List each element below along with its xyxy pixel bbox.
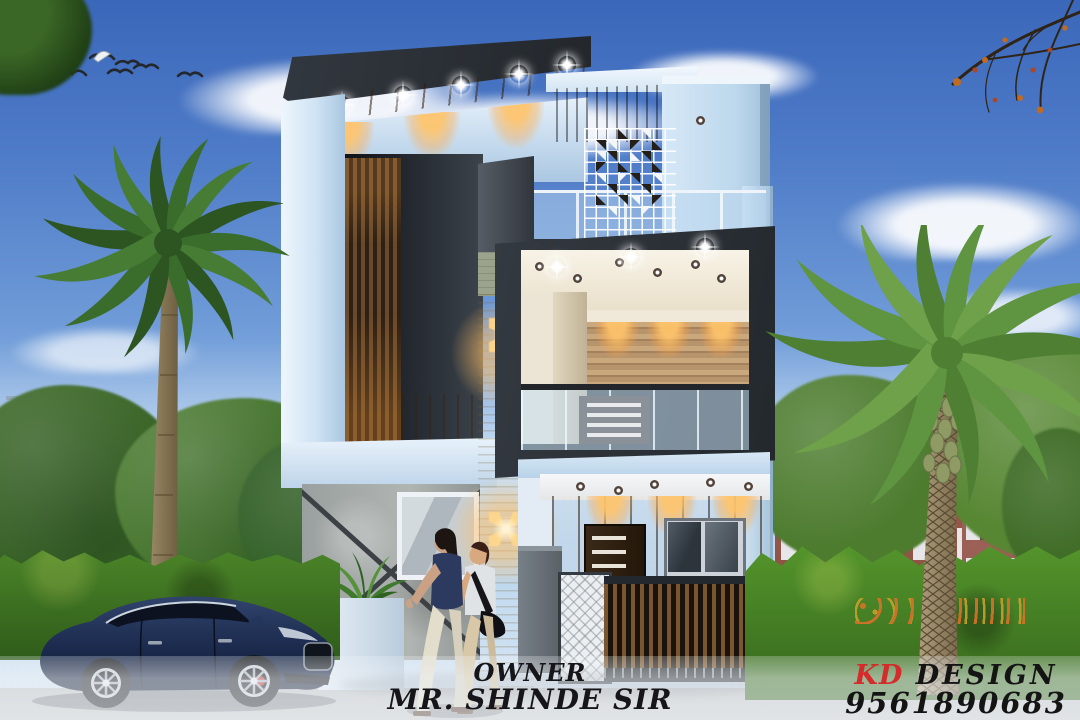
ceiling-downlight-icon	[622, 248, 640, 266]
downlight-glow	[595, 322, 639, 358]
door-slat	[592, 550, 626, 554]
stone-accent-wall	[587, 322, 749, 386]
ceiling-downlight-icon	[691, 260, 700, 269]
ceiling-downlight-icon	[573, 274, 582, 283]
ceiling-downlight-icon	[696, 238, 714, 256]
louver-warm-light	[345, 158, 401, 444]
house-elevation-render: OWNER MR. SHINDE SIR KD DESIGN 956189068…	[0, 0, 1080, 720]
railing-slat	[587, 403, 641, 407]
railing-slat	[587, 413, 641, 417]
ceiling-downlight-icon	[394, 86, 412, 104]
ceiling-downlight-icon	[650, 480, 659, 489]
downlight-glow	[647, 322, 691, 358]
owner-caption: OWNER MR. SHINDE SIR	[340, 660, 720, 715]
owner-label: OWNER	[340, 660, 720, 685]
ceiling-downlight-icon	[558, 56, 576, 74]
jali-triangles	[584, 128, 676, 240]
ceiling-downlight-icon	[452, 76, 470, 94]
balcony-glass-railing	[521, 384, 749, 450]
railing-slat	[587, 423, 641, 427]
compound-wall	[518, 546, 562, 673]
ceiling-downlight-icon	[717, 274, 726, 283]
branch-tree	[835, 0, 1080, 170]
center-column-top	[478, 156, 534, 254]
ceiling-downlight-icon	[548, 258, 566, 276]
ground-window	[664, 518, 746, 582]
downlight-glow	[488, 102, 544, 148]
palm-tree-icon	[735, 225, 1080, 695]
brand-name: KD DESIGN	[840, 662, 1072, 689]
railing-slat-panel	[579, 396, 649, 444]
window-pane	[705, 522, 738, 572]
ceiling-downlight-icon	[576, 482, 585, 491]
railing-slat	[587, 433, 641, 437]
downlight-glow	[404, 112, 460, 158]
ceiling-downlight-icon	[706, 478, 715, 487]
brand-phone: 9561890683	[840, 689, 1072, 718]
window-pane	[668, 522, 701, 572]
ceiling-downlight-icon	[510, 65, 528, 83]
designer-branding: KD DESIGN 9561890683	[840, 662, 1072, 718]
ceiling-downlight-icon	[696, 116, 705, 125]
ceiling-downlight-icon	[653, 268, 662, 277]
door-slat	[592, 536, 626, 540]
owner-name: MR. SHINDE SIR	[340, 685, 720, 714]
door-slat	[592, 564, 626, 568]
ceiling-downlight-icon	[614, 486, 623, 495]
